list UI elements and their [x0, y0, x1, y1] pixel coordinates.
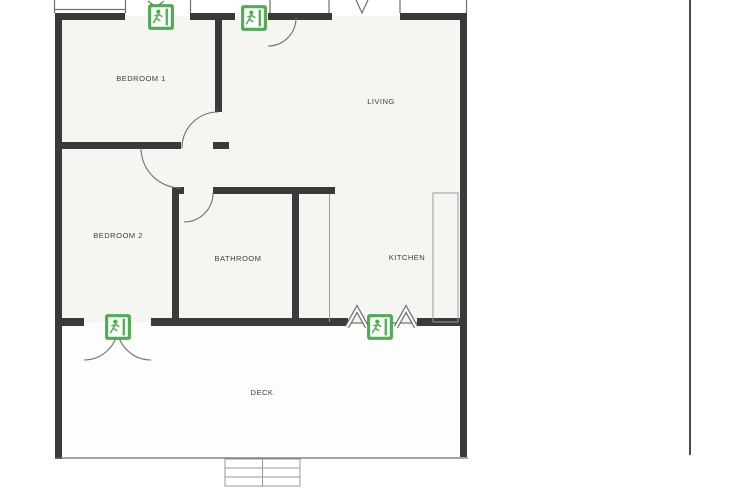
exit-sign-deck-door-icon: [106, 315, 131, 340]
room-kitchen: [299, 194, 460, 318]
room-label-kitchen: KITCHEN: [389, 253, 425, 262]
room-label-bathroom: BATHROOM: [215, 254, 262, 263]
entry-hanger-bracket: [356, 0, 368, 13]
stairs: [225, 459, 300, 486]
exit-sign-living-door-icon: [242, 6, 267, 31]
room-label-deck: DECK: [251, 388, 274, 397]
wall-top-2: [190, 13, 235, 20]
floor-plan-page: BEDROOM 1LIVINGBEDROOM 2BATHROOMKITCHEND…: [0, 0, 750, 500]
wall-bottom-1: [55, 318, 84, 326]
room-label-bedroom-1: BEDROOM 1: [116, 74, 166, 83]
room-living: [222, 20, 460, 194]
wall-bathroom-kitchen-top: [213, 187, 335, 194]
wall-hall-corner: [213, 142, 229, 149]
exit-sign-bedroom1-top-icon: [149, 5, 174, 30]
wall-left: [55, 13, 62, 459]
room-label-bedroom-2: BEDROOM 2: [93, 231, 143, 240]
deck-outline: [55, 458, 468, 486]
floor-plan-drawing: BEDROOM 1LIVINGBEDROOM 2BATHROOMKITCHEND…: [0, 0, 750, 500]
wall-top-1: [55, 13, 125, 20]
wall-bedrooms-divider: [55, 142, 181, 149]
wall-top-3: [268, 13, 332, 20]
wall-bathroom-kitchen-divider: [292, 194, 299, 325]
wall-bottom-2: [151, 318, 348, 326]
wall-bedroom1-living: [215, 20, 222, 112]
wall-top-4: [400, 13, 467, 20]
wall-right: [460, 13, 467, 457]
wall-bedroom2-bathroom: [172, 187, 179, 325]
room-label-living: LIVING: [367, 97, 395, 106]
exit-sign-kitchen-window-icon: [368, 315, 393, 340]
